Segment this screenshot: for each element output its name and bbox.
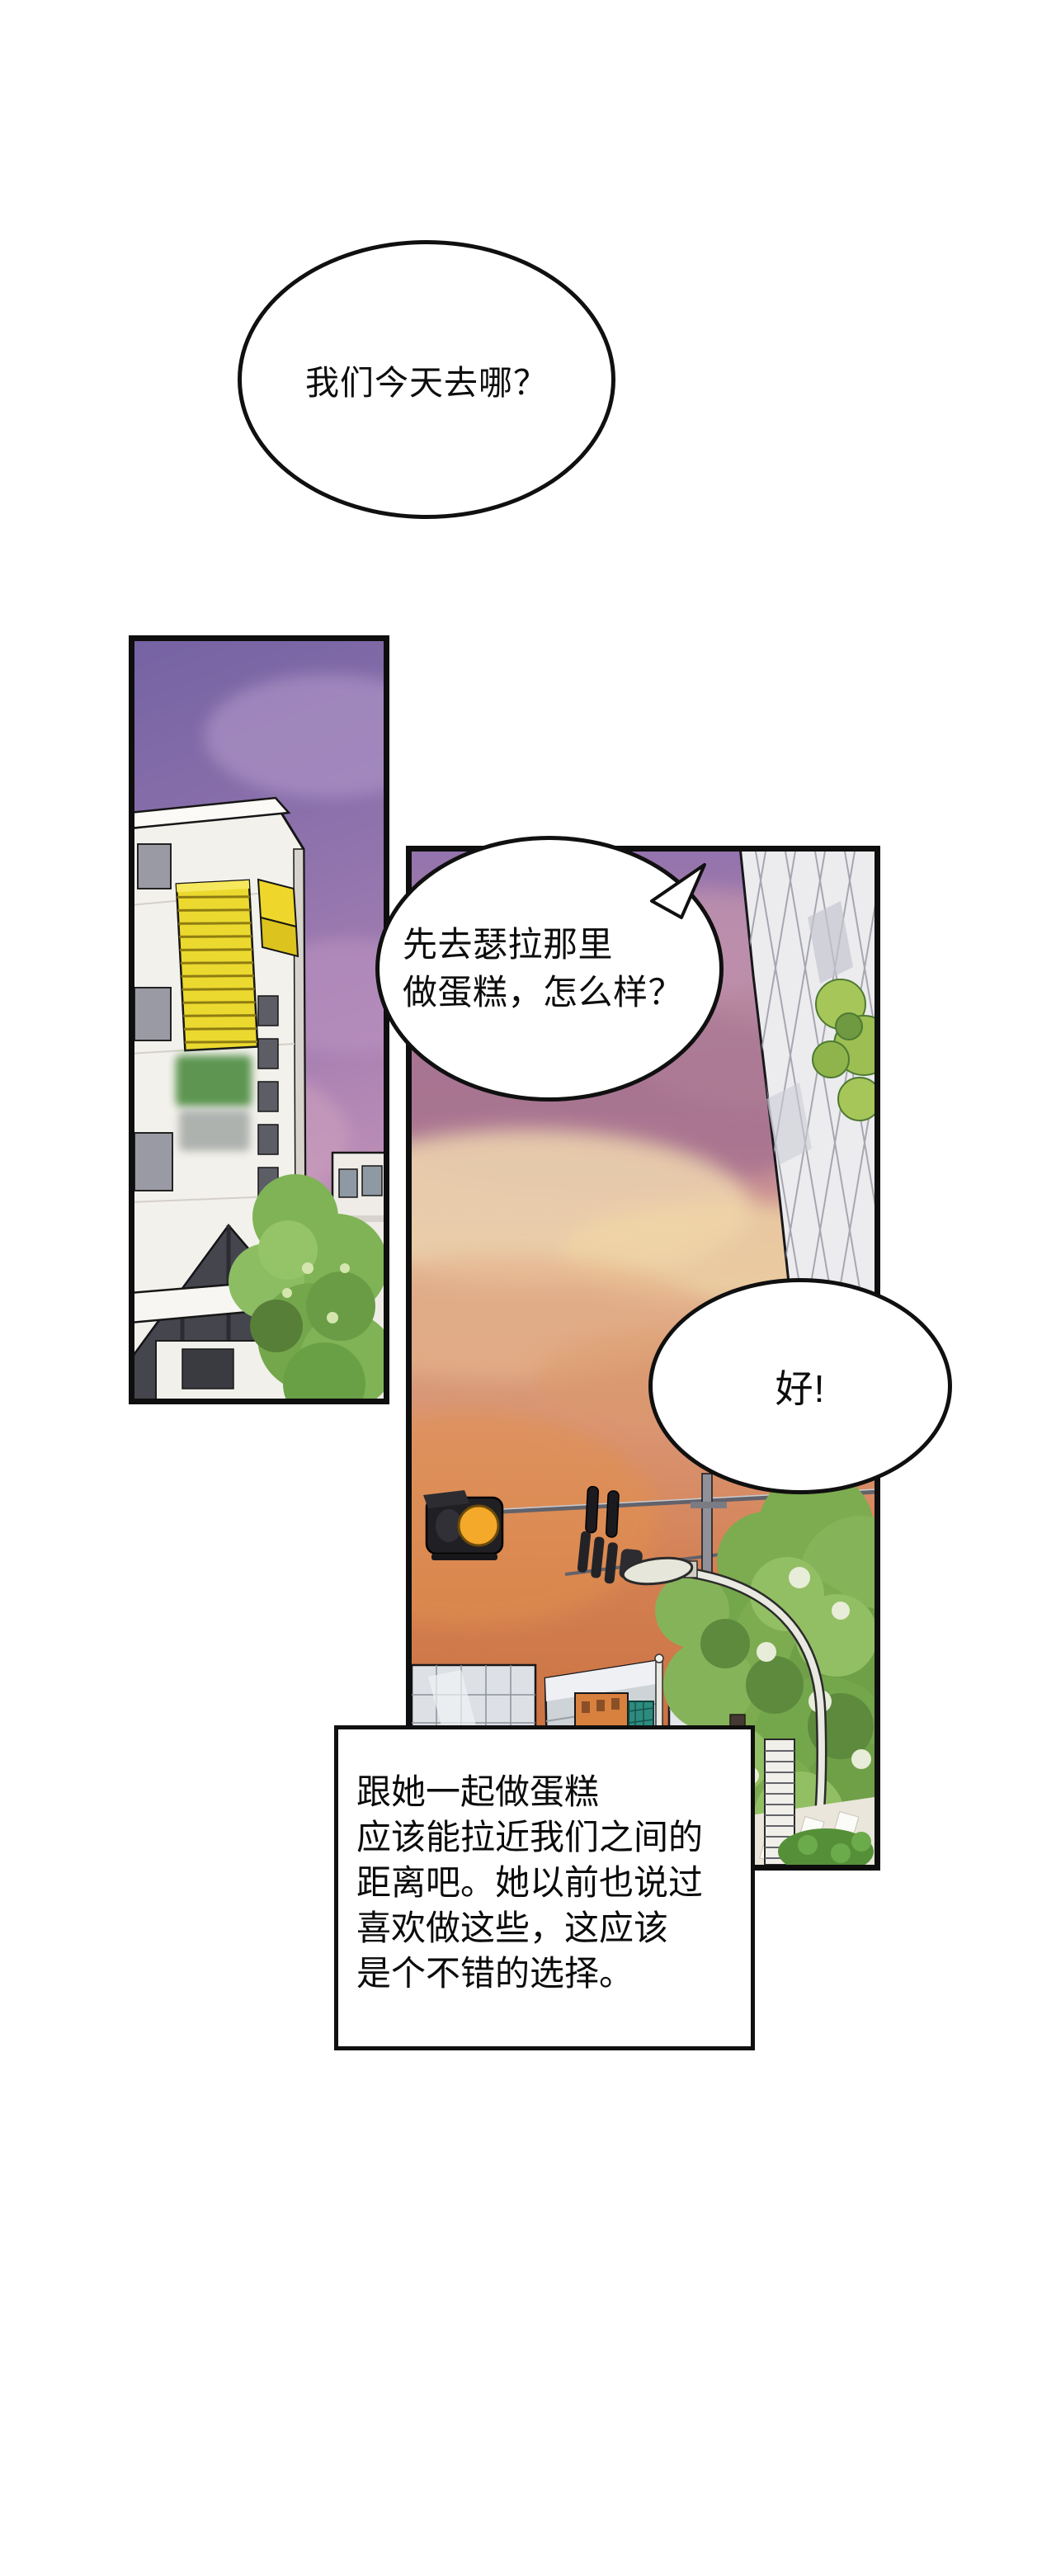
panel1-artwork	[134, 641, 384, 1399]
speech-bubble-2-text: 先去瑟拉那里 做蛋糕，怎么样？	[403, 921, 683, 1017]
speech-bubble-3: 好!	[648, 1278, 952, 1494]
speech-bubble-2-tail-icon	[645, 858, 711, 924]
speech-bubble-3-text: 好!	[775, 1359, 826, 1413]
comic-panel-city-building	[129, 635, 389, 1404]
speech-bubble-1: 我们今天去哪？	[238, 240, 615, 519]
speech-bubble-1-text: 我们今天去哪？	[305, 355, 548, 404]
narration-box: 跟她一起做蛋糕 应该能拉近我们之间的 距离吧。她以前也说过 喜欢做这些，这应该 …	[334, 1725, 755, 2050]
narration-text: 跟她一起做蛋糕 应该能拉近我们之间的 距离吧。她以前也说过 喜欢做这些，这应该 …	[356, 1771, 734, 1998]
comic-page: 我们今天去哪？ 先去瑟拉那里 做蛋糕，怎么样？ 好! 跟她一起做蛋糕 应该能拉近…	[0, 0, 1056, 2576]
